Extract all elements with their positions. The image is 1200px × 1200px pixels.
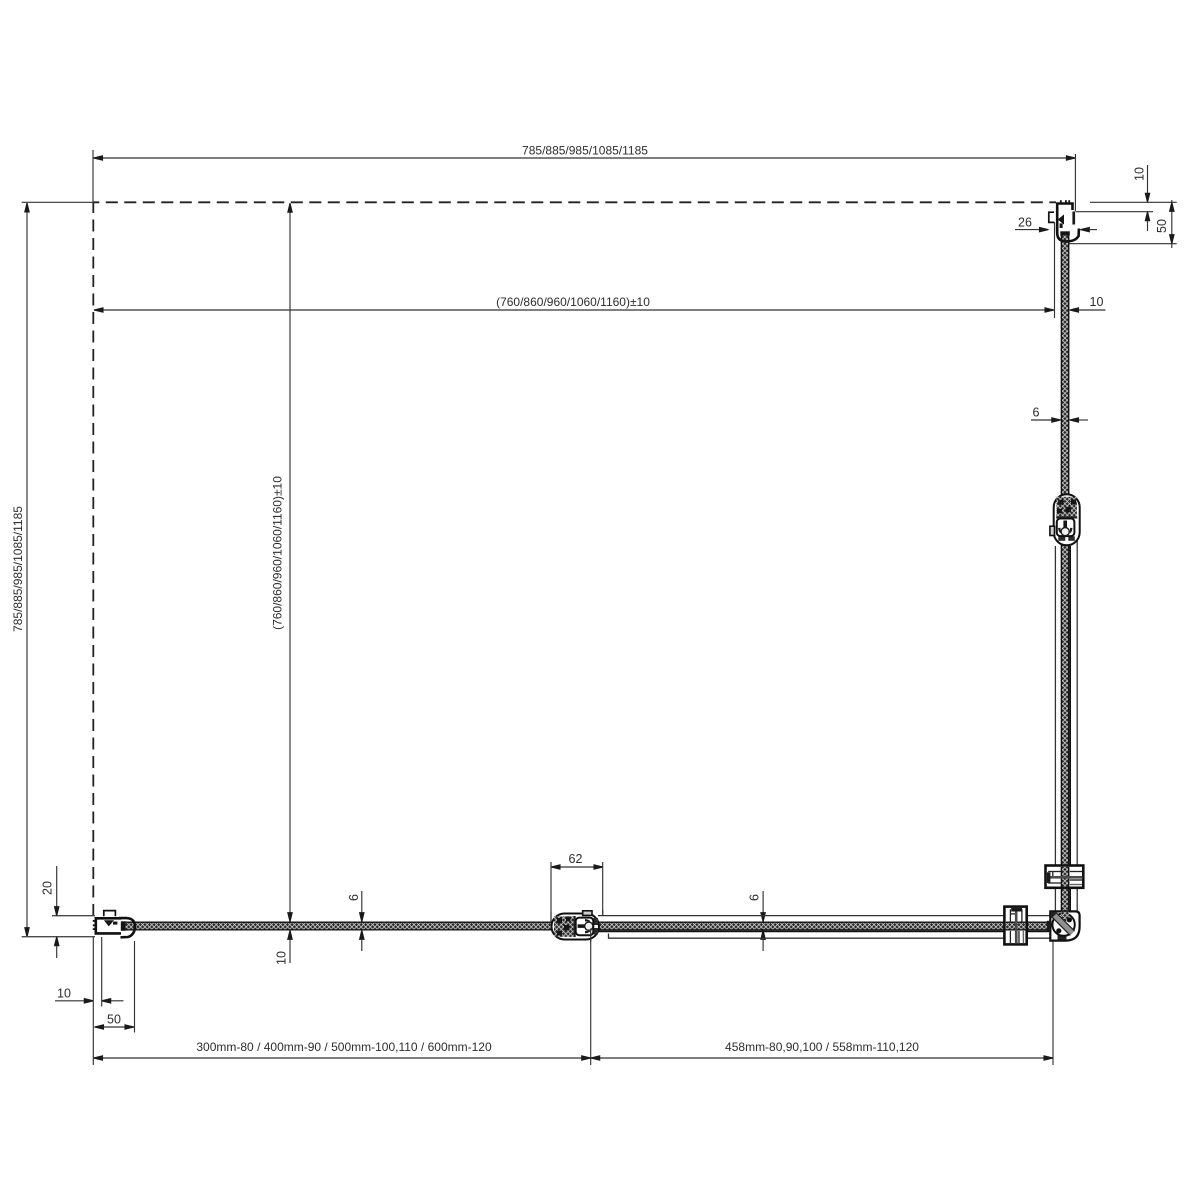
svg-text:6: 6 [347,894,361,901]
svg-text:62: 62 [569,852,583,866]
svg-text:26: 26 [1018,216,1032,230]
svg-text:50: 50 [107,1013,121,1027]
svg-text:785/885/985/1085/1185: 785/885/985/1085/1185 [522,144,648,158]
svg-text:458mm-80,90,100 / 558mm-110,12: 458mm-80,90,100 / 558mm-110,120 [725,1040,919,1054]
svg-text:10: 10 [57,987,71,1001]
svg-text:10: 10 [1133,167,1147,181]
svg-text:50: 50 [1155,219,1169,233]
svg-text:300mm-80 / 400mm-90 / 500mm-10: 300mm-80 / 400mm-90 / 500mm-100,110 / 60… [196,1040,492,1054]
svg-text:(760/860/960/1060/1160)±10: (760/860/960/1060/1160)±10 [496,295,650,309]
svg-text:6: 6 [1033,406,1040,420]
svg-text:20: 20 [41,881,55,895]
svg-text:10: 10 [275,951,289,965]
svg-text:6: 6 [748,894,762,901]
svg-text:10: 10 [1090,295,1104,309]
svg-text:(760/860/960/1060/1160)±10: (760/860/960/1060/1160)±10 [271,476,285,630]
svg-text:785/885/985/1085/1185: 785/885/985/1085/1185 [11,506,25,632]
